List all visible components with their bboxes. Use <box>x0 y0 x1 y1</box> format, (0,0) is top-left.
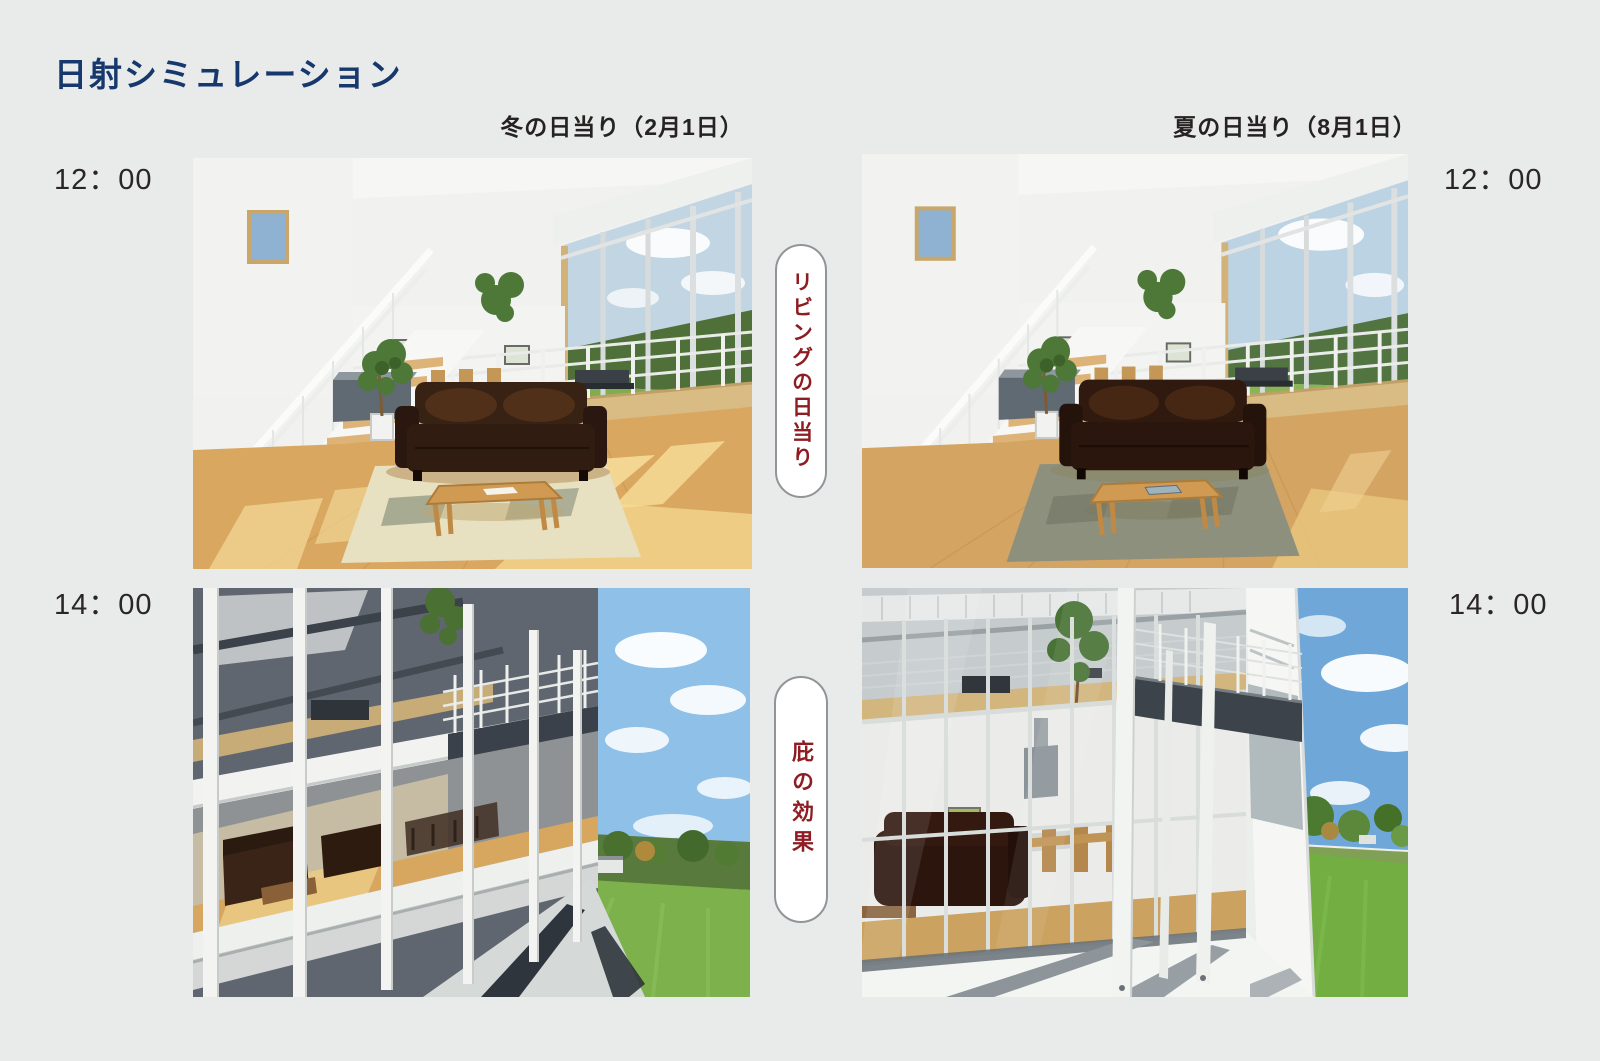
eaves-effect-label-pill: 庇の効果 <box>774 676 828 923</box>
time-label-winter-afternoon: 14：00 <box>54 581 153 623</box>
winter-afternoon-render <box>193 588 750 997</box>
winter-noon-render <box>193 158 752 569</box>
time-label-summer-afternoon: 14：00 <box>1449 581 1548 623</box>
solar-simulation-page: 日射シミュレーション 冬の日当り（2月1日） 夏の日当り（8月1日） 12：00… <box>0 0 1600 1061</box>
column-header-summer: 夏の日当り（8月1日） <box>1075 108 1515 142</box>
living-sunlight-label: リビングの日当り <box>791 271 812 471</box>
time-label-winter-noon: 12：00 <box>54 156 153 198</box>
living-sunlight-label-pill: リビングの日当り <box>775 244 827 498</box>
eaves-effect-label: 庇の効果 <box>790 740 812 860</box>
column-header-winter: 冬の日当り（2月1日） <box>402 108 842 142</box>
page-title: 日射シミュレーション <box>54 48 403 96</box>
summer-noon-render <box>862 154 1408 568</box>
time-label-summer-noon: 12：00 <box>1444 156 1543 198</box>
summer-afternoon-render <box>862 588 1408 997</box>
